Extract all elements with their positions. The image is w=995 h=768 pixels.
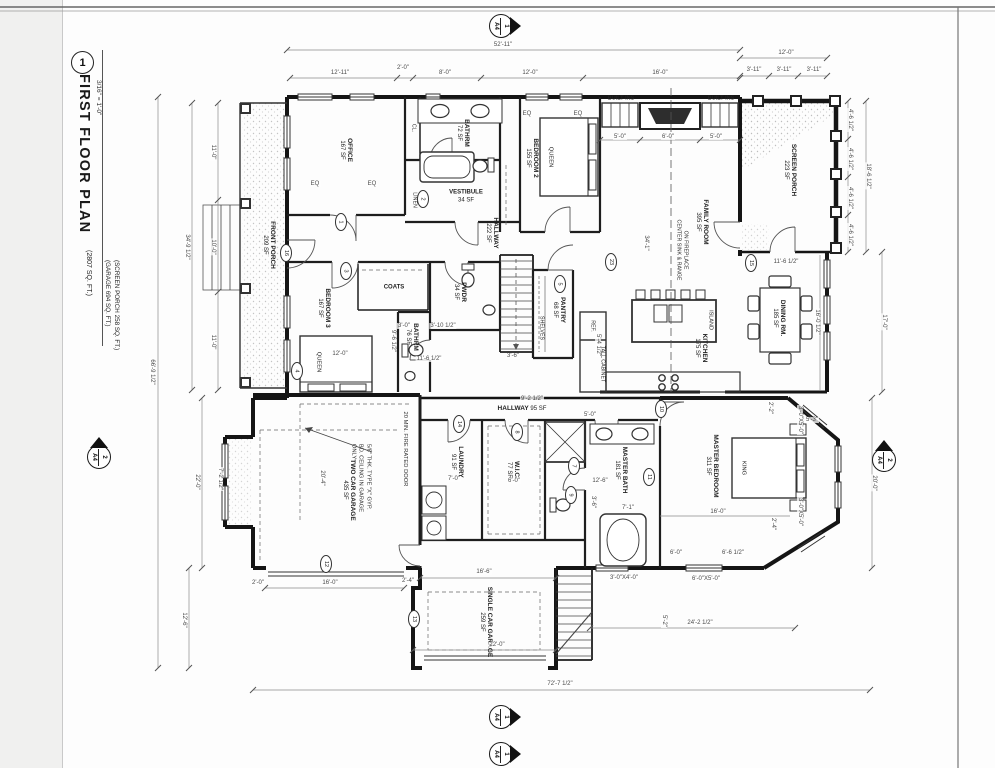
room-label-bathrm1: BATHRM72 SF bbox=[454, 119, 470, 147]
dim: 16'-0 1/2" bbox=[814, 308, 820, 335]
door-tag: 15 bbox=[745, 254, 757, 272]
dim: 6'-0"X5'-0" bbox=[691, 576, 721, 582]
dim: 12'-11" bbox=[330, 70, 350, 76]
dim: 6'-6 1/2" bbox=[721, 550, 745, 556]
dim: 2'-2" bbox=[767, 401, 773, 415]
dim: 7'-0" bbox=[447, 476, 461, 482]
door-tag: 5 bbox=[554, 275, 566, 293]
door-tag: 12 bbox=[320, 555, 332, 573]
section-arrow-icon bbox=[510, 745, 521, 763]
dim: 5'-0" bbox=[613, 134, 627, 140]
dim: 12'-6" bbox=[181, 611, 187, 628]
area-total: (2807 SQ. FT.) bbox=[85, 250, 92, 296]
door-tag: 7 bbox=[568, 457, 580, 475]
dim: 2'-4" bbox=[401, 578, 415, 584]
dim: 11'-0" bbox=[210, 144, 216, 161]
room-label-office: OFFICE167 SF bbox=[337, 138, 353, 162]
dim: 2'-4" bbox=[770, 517, 776, 531]
dim: 6'-0" bbox=[507, 478, 521, 484]
dim: 5'-0" bbox=[583, 412, 597, 418]
door-tag: 14 bbox=[453, 415, 465, 433]
room-label-laundry: LAUNDRY91 SF bbox=[448, 446, 464, 478]
door-tag: 9 bbox=[565, 486, 577, 504]
door-tag: 3 bbox=[340, 262, 352, 280]
dim: 4'-6 1/2" bbox=[847, 186, 853, 210]
dim: 4'-6 1/2" bbox=[847, 108, 853, 132]
dim: 7'-2 1/2" bbox=[217, 467, 223, 491]
dim: 22'-0" bbox=[194, 473, 200, 490]
bed-label-king: KING bbox=[739, 461, 746, 475]
coats-label: COATS bbox=[384, 284, 405, 292]
dim: 11'-6 1/2" bbox=[416, 356, 443, 362]
section-marker-bottom1: 1A4 bbox=[489, 705, 513, 729]
dim: 22'-0" bbox=[488, 642, 505, 648]
dim: 4'-6 1/2" bbox=[847, 147, 853, 171]
dim: 5'-2" bbox=[661, 614, 667, 628]
door-tag: 10 bbox=[655, 400, 667, 418]
builtins-left-label: BUILT-INS bbox=[608, 96, 634, 103]
dim: 3'-0"X5'-0" bbox=[797, 497, 803, 527]
dim: 2'-0" bbox=[396, 65, 410, 71]
center-sink-note: CENTER SINK & RANGE bbox=[675, 220, 682, 281]
bed-label-queen3: QUEEN bbox=[314, 352, 321, 373]
dim: 11'-0" bbox=[210, 334, 216, 351]
dim: 8'-0" bbox=[438, 70, 452, 76]
dim: 3'-6" bbox=[590, 495, 596, 509]
dim-eq: EQ bbox=[573, 111, 584, 117]
dim: 34'-9 1/2" bbox=[184, 233, 190, 260]
dim: 66'-9 1/2" bbox=[149, 358, 155, 385]
area-garage: (GARAGE 694 SQ. FT.) bbox=[104, 260, 111, 326]
floor-plan-sheet: 1 FIRST FLOOR PLAN 3/16" = 1'-0" (2807 S… bbox=[0, 0, 995, 768]
section-arrow-icon bbox=[510, 708, 521, 726]
dim: 24'-2 1/2" bbox=[686, 620, 713, 626]
detail-number-bubble: 1 bbox=[71, 51, 94, 74]
room-label-front-porch: FRONT PORCH209 SF bbox=[260, 221, 276, 269]
door-tag: 4 bbox=[291, 362, 303, 380]
room-label-screen-porch: SCREEN PORCH223 SF bbox=[781, 144, 797, 196]
dim: 20'-0" bbox=[871, 474, 877, 491]
room-label-bedroom3: BEDROOM 3167 SF bbox=[315, 288, 331, 327]
section-arrow-icon bbox=[875, 440, 893, 451]
dim: 5'-4 1/2" bbox=[595, 333, 601, 357]
room-label-hallway1: HALLWAY222 SF bbox=[483, 217, 499, 248]
dim: 52'-11" bbox=[493, 42, 513, 48]
dim-eq: EQ bbox=[310, 181, 321, 187]
door-tag: 11 bbox=[643, 468, 655, 486]
dim: 12'-0" bbox=[521, 70, 538, 76]
dim: 3'-6" bbox=[506, 353, 520, 359]
section-arrow-icon bbox=[90, 437, 108, 448]
room-label-hallway2: HALLWAY 95 SF bbox=[498, 405, 547, 414]
door-tag: 23 bbox=[605, 253, 617, 271]
dim: 3'-0" bbox=[397, 323, 411, 329]
dim: 16'-0" bbox=[709, 509, 726, 515]
area-screen-porch: (SCREEN PORCH 258 SQ. FT.) bbox=[113, 260, 120, 350]
section-marker-top: 1A4 bbox=[489, 14, 513, 38]
room-label-family-room: FAMILY ROOM395 SF bbox=[693, 199, 709, 244]
dim: 17'-0" bbox=[881, 313, 887, 330]
dim: 5'-3" bbox=[805, 417, 819, 423]
dim: 11'-6 1/2" bbox=[773, 259, 800, 265]
sheet-title: FIRST FLOOR PLAN bbox=[76, 74, 92, 233]
shelves-label: SHELVES bbox=[538, 316, 545, 340]
dim: 7'-1" bbox=[621, 505, 635, 511]
dim: 4'-6 1/2" bbox=[847, 223, 853, 247]
dim: 3'-11" bbox=[746, 67, 763, 73]
door-tag: 16 bbox=[280, 244, 292, 262]
room-label-vestibule: VESTIBULE34 SF bbox=[449, 190, 483, 205]
dim: 6'-0" bbox=[661, 134, 675, 140]
room-label-master-bedroom: MASTER BEDROOM311 SF bbox=[703, 434, 719, 497]
room-label-master-bath: MASTER BATH181 SF bbox=[612, 447, 628, 494]
closet-label: CL. bbox=[410, 124, 417, 132]
room-label-dining: DINING RM.185 SF bbox=[770, 300, 786, 336]
dim: 20'-4" bbox=[319, 469, 325, 486]
dim: 2'-0" bbox=[251, 580, 265, 586]
door-tag: 13 bbox=[408, 610, 420, 628]
section-arrow-icon bbox=[510, 17, 521, 35]
room-label-kitchen: KITCHEN175 SF bbox=[692, 334, 708, 363]
section-marker-bottom2: 1A4 bbox=[489, 742, 513, 766]
dim: 9'-2 1/2" bbox=[520, 396, 544, 402]
dim: 12'-6" bbox=[591, 478, 608, 484]
door-tag: 8 bbox=[511, 423, 523, 441]
room-label-pantry: PANTRY68 SF bbox=[550, 297, 566, 323]
room-label-wic: W.I.C.77 SF bbox=[504, 461, 520, 479]
dim: 9'-6 1/2" bbox=[390, 329, 396, 353]
dim: 3'-0"X5'-0" bbox=[797, 405, 803, 435]
section-marker-left: 2A4 bbox=[87, 445, 111, 469]
sheet-scale: 3/16" = 1'-0" bbox=[95, 80, 102, 115]
dim-eq: EQ bbox=[522, 111, 533, 117]
dim: 5'-0" bbox=[709, 134, 723, 140]
dim-eq: EQ bbox=[367, 181, 378, 187]
dim: 3'-11" bbox=[776, 67, 793, 73]
fire-door-note: 20 MIN. FIRE RATED DOOR bbox=[400, 412, 408, 487]
dim: 18'-6 1/2" bbox=[865, 162, 871, 189]
dim: 16'-6" bbox=[475, 569, 492, 575]
dim: 10'-0" bbox=[210, 238, 216, 255]
dim: 16'-0" bbox=[651, 70, 668, 76]
door-tag: 2 bbox=[417, 190, 429, 208]
dim: 3'-11" bbox=[806, 67, 823, 73]
room-label-bedroom2: BEDROOM 2155 SF bbox=[523, 138, 539, 177]
dim: 3'-0"X4'-0" bbox=[609, 575, 639, 581]
dim: 72'-7 1/2" bbox=[546, 681, 573, 687]
builtins-right-label: BUILT-INS bbox=[708, 96, 734, 103]
bed-label-queen2: QUEEN bbox=[546, 147, 553, 168]
fridge-label: REF. bbox=[589, 320, 596, 331]
dim: 16'-0" bbox=[321, 580, 338, 586]
on-fireplace-note: ON FIREPLACE bbox=[682, 231, 689, 270]
title-rule bbox=[102, 50, 103, 346]
gyp-board-note: 5/8" THK. TYPE "X" GYP. BD. CEILING IN G… bbox=[349, 444, 372, 512]
door-tag: 1 bbox=[335, 213, 347, 231]
dim: 6'-0" bbox=[669, 550, 683, 556]
dim: 12'-0" bbox=[777, 50, 794, 56]
dim: 34'-1" bbox=[643, 234, 649, 251]
dim: 3'-10 1/2" bbox=[429, 323, 456, 329]
section-marker-right: 2A4 bbox=[872, 448, 896, 472]
island-label: ISLAND bbox=[707, 310, 714, 330]
room-label-pwdr: PWDR34 SF bbox=[451, 282, 467, 302]
dim: 12'-0" bbox=[331, 351, 348, 357]
